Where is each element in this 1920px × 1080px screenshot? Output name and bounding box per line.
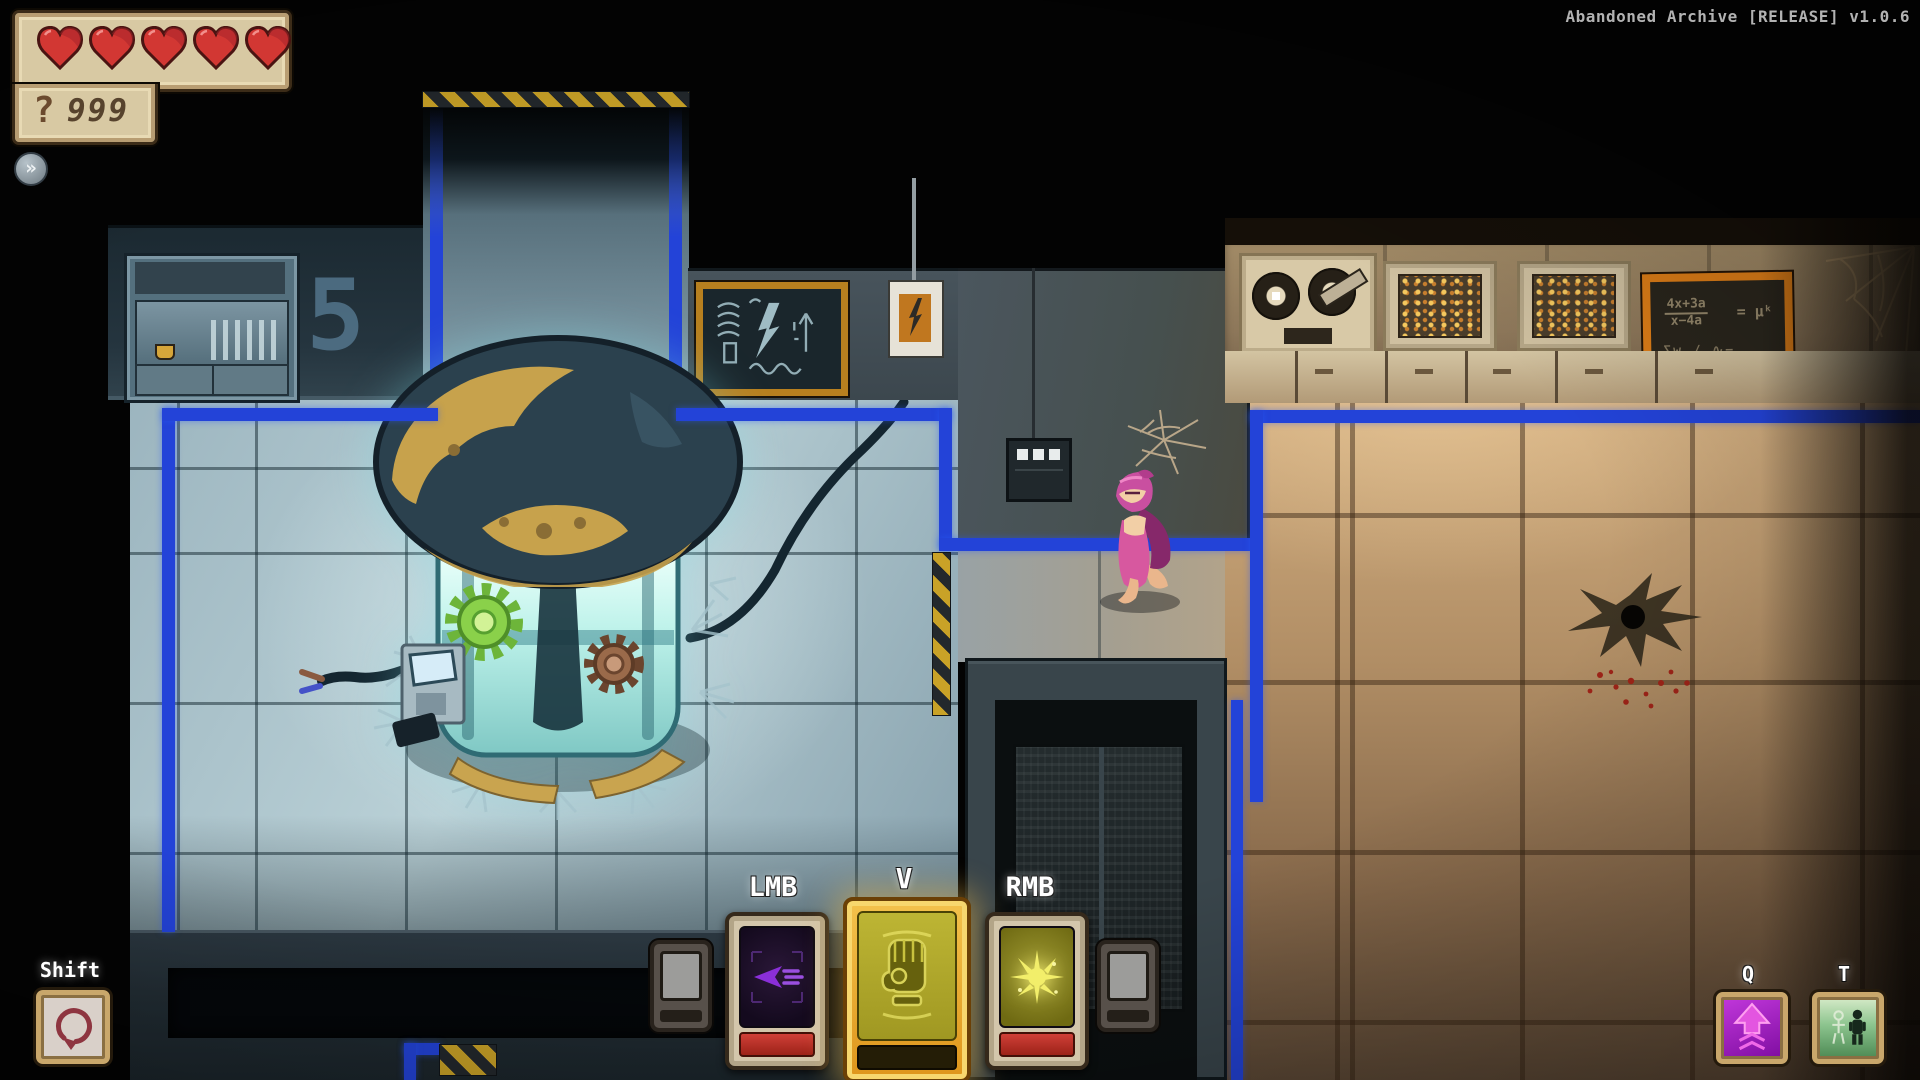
formula-numerator: 4x+3a bbox=[1664, 297, 1707, 315]
stasis-pod bbox=[362, 330, 757, 825]
upgrade-button[interactable] bbox=[1716, 992, 1788, 1064]
game-screen: 5 bbox=[0, 0, 1920, 1080]
lab-bottom-wall bbox=[130, 930, 958, 1080]
formula-denominator: x−4a bbox=[1671, 313, 1703, 329]
dash-keybind-label: Shift bbox=[30, 958, 110, 982]
two-figures-icon bbox=[1825, 1005, 1871, 1051]
dash-button[interactable] bbox=[36, 990, 110, 1064]
hazard-stripe-south bbox=[440, 1045, 496, 1075]
special-slot-bar bbox=[857, 1045, 957, 1070]
device-wire bbox=[1032, 268, 1035, 440]
upgrade-keybind-label: Q bbox=[1708, 962, 1788, 986]
empty-slot-right[interactable] bbox=[1097, 940, 1159, 1032]
indicator-panel-2 bbox=[1517, 261, 1631, 351]
edge-shadow bbox=[1760, 218, 1920, 1080]
heart-icon bbox=[245, 26, 291, 70]
floor-line-north-b bbox=[676, 408, 952, 421]
red-droplets bbox=[1588, 670, 1690, 709]
lightning-bolt-icon bbox=[909, 298, 922, 336]
ability-card-primary[interactable] bbox=[725, 912, 829, 1070]
reel-tape-machine bbox=[1239, 253, 1377, 355]
cooldown-bar bbox=[739, 1032, 815, 1057]
electricity-sign bbox=[888, 280, 944, 358]
hanging-device bbox=[1006, 438, 1072, 502]
test-tubes bbox=[211, 320, 281, 360]
sign-pole bbox=[912, 178, 916, 280]
secondary-keybind-label: RMB bbox=[990, 872, 1070, 903]
expand-button[interactable]: » bbox=[14, 152, 48, 186]
floor-line-east bbox=[939, 408, 952, 550]
roll-arrow-icon bbox=[49, 1003, 97, 1051]
purple-dart-icon bbox=[746, 946, 808, 1008]
swap-keybind-label: T bbox=[1804, 962, 1884, 986]
floor-line-archive-west bbox=[1250, 410, 1263, 802]
special-keybind-label: V bbox=[864, 862, 944, 895]
floor-line-north-a bbox=[162, 408, 438, 421]
heart-icon bbox=[37, 26, 83, 70]
health-panel bbox=[12, 10, 292, 92]
swap-button[interactable] bbox=[1812, 992, 1884, 1064]
cabinet-doors bbox=[135, 364, 289, 396]
player-character bbox=[1090, 468, 1190, 618]
floor-line-west bbox=[162, 408, 175, 932]
cooldown-bar bbox=[999, 1032, 1075, 1057]
indicator-panel-1 bbox=[1383, 261, 1497, 351]
wall-number: 5 bbox=[306, 259, 365, 373]
floor-stain bbox=[1530, 555, 1740, 720]
currency-icon: ? bbox=[33, 90, 55, 131]
heart-icon bbox=[141, 26, 187, 70]
fist-icon bbox=[869, 928, 945, 1024]
empty-slot-left[interactable] bbox=[650, 940, 712, 1032]
up-arrow-icon bbox=[1729, 1001, 1775, 1055]
hazard-stripe-north bbox=[423, 92, 689, 107]
cabinet-glass-case bbox=[135, 300, 289, 368]
heart-icon bbox=[193, 26, 239, 70]
primary-keybind-label: LMB bbox=[733, 872, 813, 903]
hearts-row bbox=[37, 26, 291, 70]
floor-line-doorway bbox=[1231, 700, 1243, 1080]
heart-icon bbox=[89, 26, 135, 70]
character-shadow bbox=[1100, 591, 1180, 613]
ability-card-secondary[interactable] bbox=[985, 912, 1089, 1070]
flask bbox=[155, 344, 175, 360]
lab-cabinet bbox=[124, 253, 300, 403]
currency-panel: ? 999 bbox=[12, 84, 158, 145]
floor-line-south-corner-v bbox=[404, 1043, 416, 1080]
ability-card-special[interactable] bbox=[843, 897, 971, 1080]
hazard-stripe-east-door bbox=[933, 553, 950, 715]
energy-burst-icon bbox=[1004, 944, 1070, 1010]
cabinet-vents bbox=[135, 262, 285, 294]
currency-value: 999 bbox=[67, 93, 129, 129]
chalk-lightning bbox=[756, 303, 779, 358]
game-title: Abandoned Archive [RELEASE] v1.0.6 bbox=[1565, 7, 1910, 26]
